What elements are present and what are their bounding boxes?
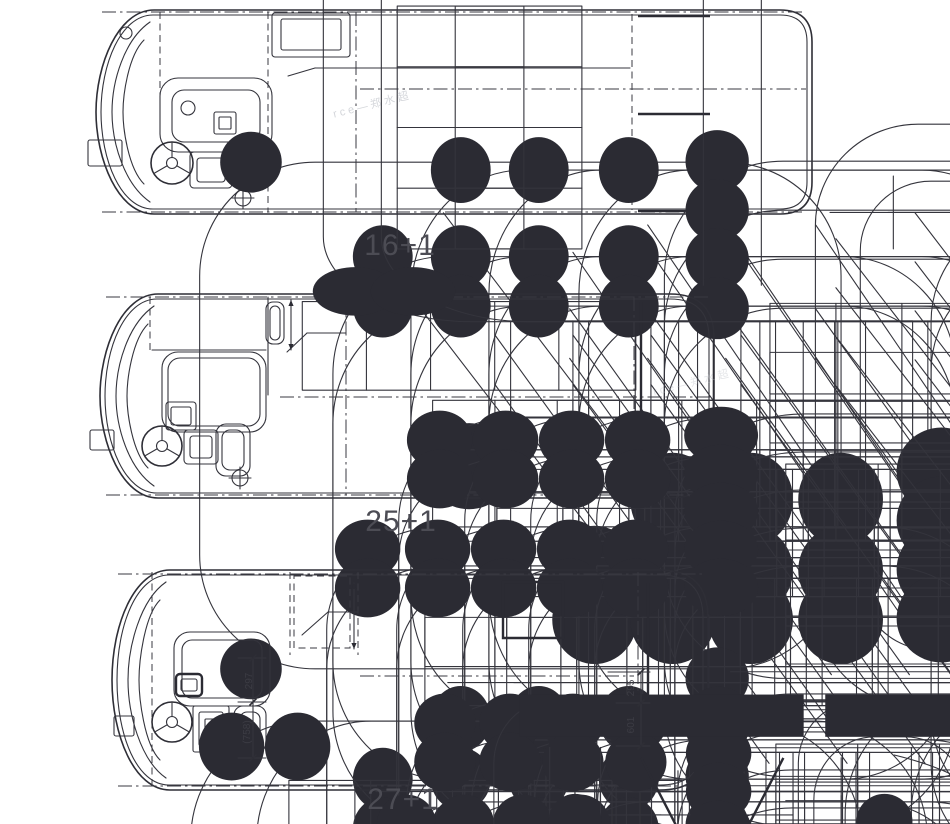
cockpit-fixture	[162, 352, 266, 432]
layout-capacity-label-16-1: 16+1	[364, 229, 436, 263]
windshield-curve	[116, 306, 154, 486]
floorplan-canvas: 297(758)295601	[0, 0, 950, 824]
cockpit-fixture	[266, 302, 284, 344]
dimension-label: 295	[626, 679, 637, 696]
windshield-curve	[112, 22, 150, 202]
cockpit-fixture	[88, 140, 122, 166]
folding-seat	[798, 695, 950, 824]
dimension-label: 601	[626, 716, 637, 733]
windshield-curve	[128, 582, 166, 778]
cockpit-fixture	[190, 436, 212, 458]
cockpit-fixture	[270, 306, 280, 340]
cockpit-fixture	[281, 19, 341, 50]
grab-rail	[288, 300, 293, 350]
bus-floorplan-sheet: 297(758)295601 16+1 25+1 27+1 rce—郑水超 rc…	[0, 0, 950, 824]
steering-wheel	[151, 142, 193, 184]
dimension-label: (758)	[242, 720, 253, 743]
cockpit-fixture	[184, 430, 218, 464]
steering-wheel	[152, 702, 192, 742]
cockpit-fixture	[176, 674, 202, 696]
cockpit-fixture	[219, 117, 231, 129]
layout-capacity-label-25-1: 25+1	[365, 505, 437, 539]
layout-capacity-label-27-1: 27+1	[367, 783, 439, 817]
cockpit-fixture	[168, 358, 260, 426]
dimension-label: 297	[244, 672, 255, 689]
steering-wheel	[142, 426, 182, 466]
cockpit-fixture	[222, 430, 244, 470]
cockpit-fixture	[214, 112, 236, 134]
cockpit-fixture	[171, 407, 191, 425]
